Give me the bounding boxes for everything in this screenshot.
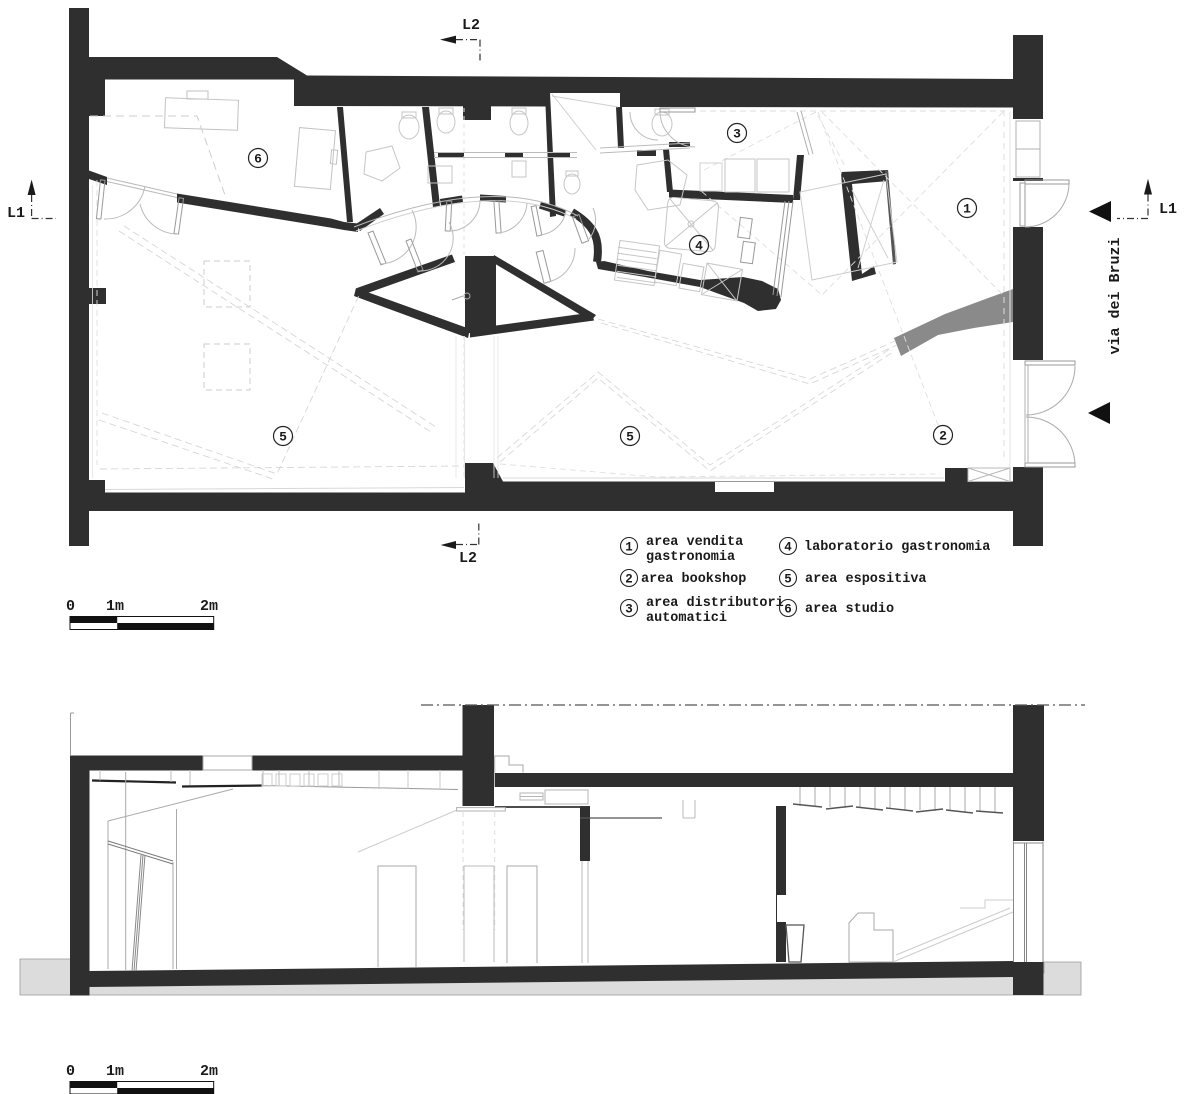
svg-text:2: 2 — [625, 573, 633, 587]
svg-text:2m: 2m — [200, 598, 218, 615]
svg-text:1: 1 — [625, 541, 633, 555]
svg-text:6: 6 — [784, 603, 792, 617]
svg-text:via dei Bruzi: via dei Bruzi — [1107, 237, 1124, 354]
svg-text:L2: L2 — [459, 550, 477, 567]
svg-text:automatici: automatici — [646, 611, 727, 626]
svg-text:0: 0 — [66, 1063, 75, 1080]
svg-text:5: 5 — [279, 430, 287, 445]
svg-text:5: 5 — [626, 430, 634, 445]
svg-text:L1: L1 — [7, 205, 25, 222]
svg-text:area studio: area studio — [805, 602, 894, 617]
svg-text:5: 5 — [784, 573, 792, 587]
svg-text:area espositiva: area espositiva — [805, 572, 927, 587]
svg-text:4: 4 — [784, 541, 792, 555]
svg-text:0: 0 — [66, 598, 75, 615]
svg-text:area bookshop: area bookshop — [641, 572, 746, 587]
svg-text:L2: L2 — [462, 17, 480, 34]
svg-text:1: 1 — [963, 202, 971, 217]
svg-text:2m: 2m — [200, 1063, 218, 1080]
svg-text:L1: L1 — [1159, 201, 1177, 218]
svg-text:area distributori: area distributori — [646, 596, 784, 611]
svg-text:laboratorio gastronomia: laboratorio gastronomia — [804, 540, 990, 555]
svg-text:1m: 1m — [106, 1063, 124, 1080]
svg-text:area vendita: area vendita — [646, 535, 743, 550]
svg-text:6: 6 — [254, 152, 262, 167]
svg-text:3: 3 — [733, 127, 741, 142]
svg-text:1m: 1m — [106, 598, 124, 615]
svg-text:4: 4 — [695, 239, 703, 254]
svg-text:gastronomia: gastronomia — [646, 550, 735, 565]
svg-text:3: 3 — [625, 603, 633, 617]
svg-text:2: 2 — [939, 429, 947, 444]
